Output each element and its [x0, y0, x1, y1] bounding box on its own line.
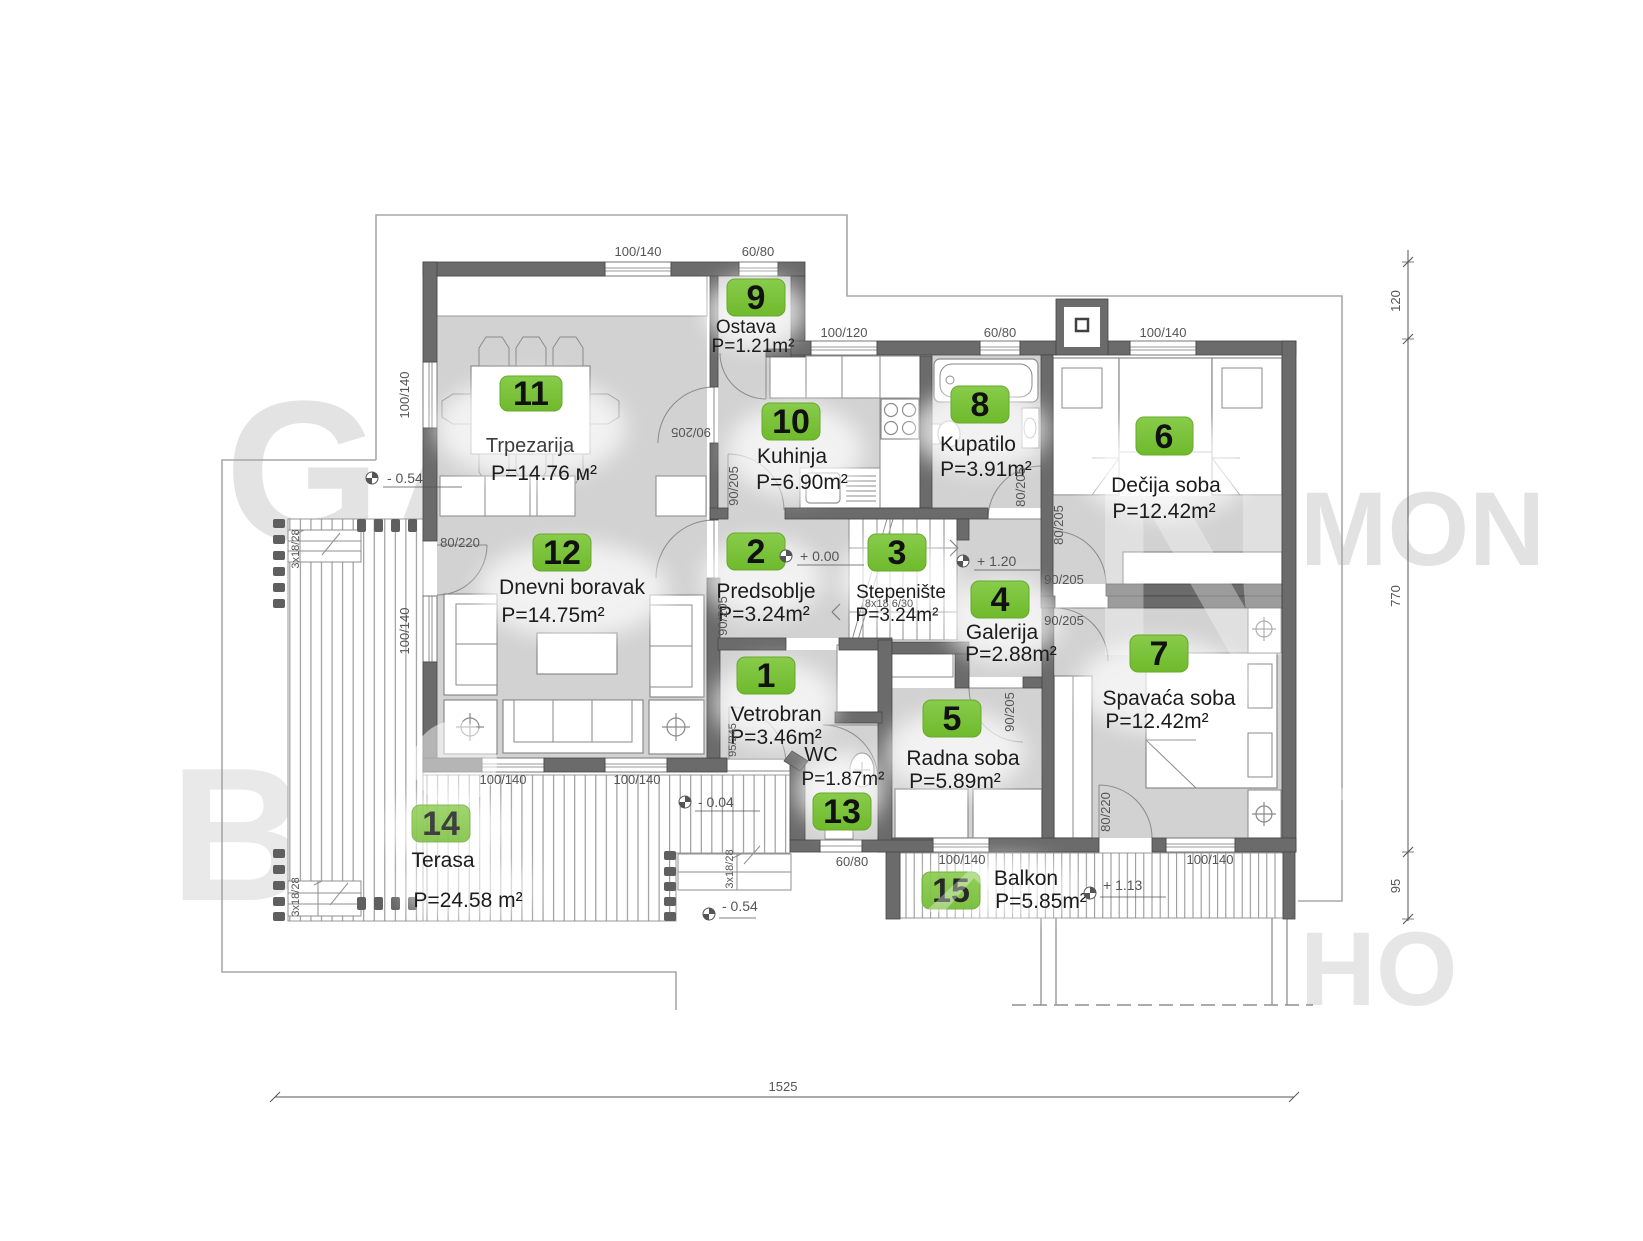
svg-text:10: 10	[772, 403, 810, 441]
svg-text:Predsoblje: Predsoblje	[716, 580, 815, 603]
svg-text:90/205: 90/205	[1002, 692, 1017, 732]
svg-text:+ 1.13: + 1.13	[1103, 877, 1143, 893]
svg-text:+ 1.20: + 1.20	[977, 553, 1017, 569]
svg-text:P=1.87m²: P=1.87m²	[802, 769, 885, 790]
svg-text:60/80: 60/80	[836, 854, 869, 869]
svg-text:100/140: 100/140	[1140, 325, 1187, 340]
svg-text:P=14.76 м²: P=14.76 м²	[491, 462, 597, 485]
svg-text:P=12.42m²: P=12.42m²	[1112, 500, 1215, 523]
svg-text:90/205: 90/205	[726, 466, 741, 506]
svg-text:1: 1	[757, 657, 776, 695]
svg-text:7: 7	[1150, 635, 1169, 673]
svg-text:Spavaća soba: Spavaća soba	[1102, 687, 1235, 710]
svg-text:3x18/28: 3x18/28	[290, 529, 302, 568]
svg-text:P=12.42m²: P=12.42m²	[1105, 710, 1208, 733]
svg-text:80/220: 80/220	[1098, 792, 1113, 832]
svg-text:90/205: 90/205	[715, 596, 730, 636]
svg-text:3x18/28: 3x18/28	[290, 877, 302, 916]
svg-text:100/140: 100/140	[614, 772, 661, 787]
svg-text:100/140: 100/140	[397, 608, 412, 655]
svg-text:100/140: 100/140	[939, 852, 986, 867]
svg-text:P=24.58 m²: P=24.58 m²	[413, 889, 522, 912]
svg-text:- 0.04: - 0.04	[698, 794, 734, 810]
svg-text:95: 95	[1388, 879, 1403, 893]
svg-text:11: 11	[513, 375, 549, 413]
svg-text:5: 5	[943, 700, 962, 738]
svg-text:P=2.88m²: P=2.88m²	[965, 643, 1057, 666]
svg-text:80/220: 80/220	[440, 535, 480, 550]
svg-text:8x18 6/30: 8x18 6/30	[865, 598, 913, 610]
svg-text:4: 4	[991, 581, 1010, 619]
svg-text:MON: MON	[1300, 471, 1545, 588]
svg-text:770: 770	[1388, 585, 1403, 607]
svg-text:P=6.90m²: P=6.90m²	[756, 471, 848, 494]
svg-text:HO: HO	[1300, 911, 1458, 1028]
svg-text:Ostava: Ostava	[716, 317, 777, 338]
svg-text:Terasa: Terasa	[411, 849, 474, 872]
svg-text:6: 6	[1155, 418, 1174, 456]
svg-text:90/205: 90/205	[1044, 613, 1084, 628]
svg-text:Kupatilo: Kupatilo	[940, 433, 1016, 456]
svg-text:Balkon: Balkon	[994, 867, 1058, 890]
svg-text:100/140: 100/140	[1187, 852, 1234, 867]
svg-text:100/120: 100/120	[821, 325, 868, 340]
svg-text:P=14.75m²: P=14.75m²	[501, 604, 604, 627]
svg-text:- 0.54: - 0.54	[722, 898, 758, 914]
svg-text:3x18/28: 3x18/28	[724, 849, 736, 888]
svg-text:80/205: 80/205	[1013, 467, 1028, 507]
svg-text:+ 0.00: + 0.00	[800, 548, 840, 564]
svg-text:- 0.54: - 0.54	[387, 470, 423, 486]
svg-text:Galerija: Galerija	[966, 621, 1039, 644]
svg-text:1525: 1525	[769, 1079, 798, 1094]
svg-text:80/205: 80/205	[1051, 505, 1066, 545]
svg-text:P=1.21m²: P=1.21m²	[712, 336, 795, 357]
svg-text:Trpezarija: Trpezarija	[486, 435, 575, 457]
svg-text:13: 13	[823, 793, 861, 831]
svg-text:95/245: 95/245	[727, 723, 739, 757]
svg-text:P=5.85m²: P=5.85m²	[995, 890, 1087, 913]
svg-text:14: 14	[422, 805, 460, 843]
svg-text:90/205: 90/205	[671, 425, 711, 440]
svg-text:P=5.89m²: P=5.89m²	[909, 770, 1001, 793]
svg-text:60/80: 60/80	[984, 325, 1017, 340]
svg-text:120: 120	[1388, 290, 1403, 312]
svg-text:Vetrobran: Vetrobran	[730, 703, 821, 726]
svg-text:8: 8	[971, 386, 990, 424]
svg-text:Dnevni boravak: Dnevni boravak	[499, 576, 645, 599]
svg-text:12: 12	[543, 534, 581, 572]
svg-text:100/140: 100/140	[397, 372, 412, 419]
svg-text:9: 9	[747, 279, 766, 317]
svg-text:100/140: 100/140	[615, 244, 662, 259]
svg-text:100/140: 100/140	[480, 772, 527, 787]
svg-text:Dečija soba: Dečija soba	[1111, 474, 1221, 497]
svg-text:2: 2	[747, 533, 766, 571]
svg-text:P=3.24m²: P=3.24m²	[718, 603, 810, 626]
svg-text:WC: WC	[804, 744, 837, 766]
svg-text:Radna soba: Radna soba	[906, 747, 1020, 770]
svg-text:3: 3	[888, 534, 907, 572]
svg-text:60/80: 60/80	[742, 244, 775, 259]
svg-text:90/205: 90/205	[1044, 572, 1084, 587]
svg-text:Kuhinja: Kuhinja	[757, 445, 827, 468]
